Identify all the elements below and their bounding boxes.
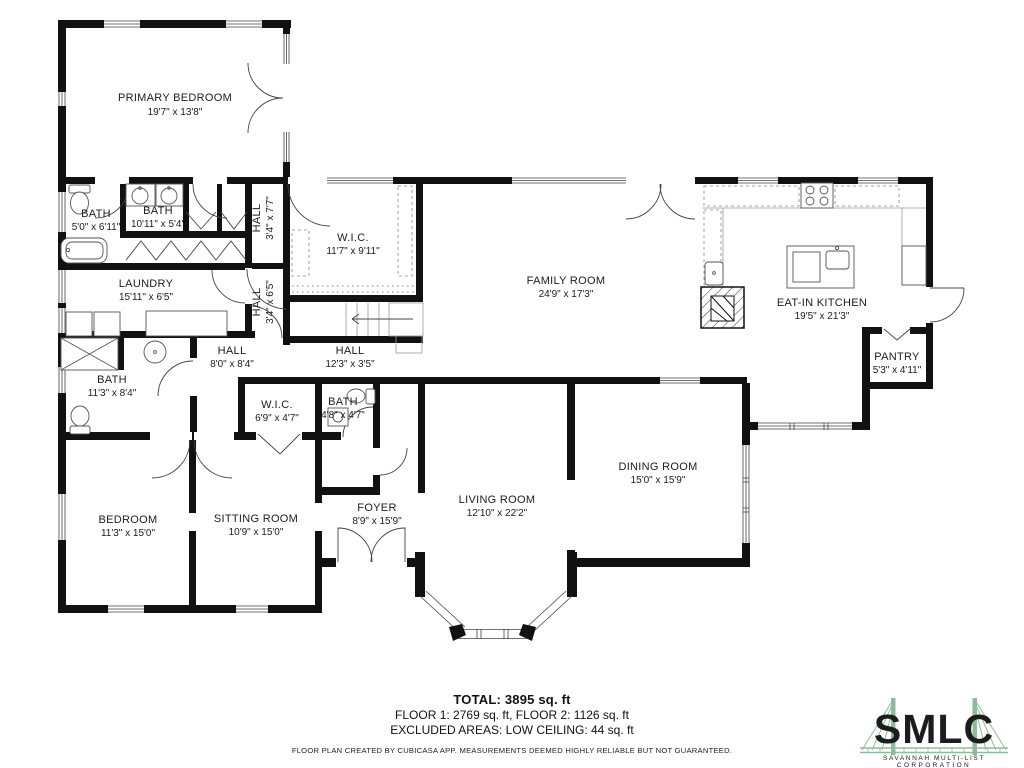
svg-text:15'11" x 6'5": 15'11" x 6'5" [119, 292, 174, 303]
room-label-bedroom: BEDROOM 11'3" x 15'0" [99, 514, 158, 539]
svg-text:11'7" x 9'11": 11'7" x 9'11" [326, 246, 380, 257]
svg-text:BATH: BATH [97, 374, 127, 386]
bathtub [61, 238, 107, 263]
svg-text:FOYER: FOYER [357, 502, 396, 514]
total-area: TOTAL: 3895 sq. ft [0, 692, 1024, 707]
svg-text:6'9" x 4'7": 6'9" x 4'7" [255, 413, 299, 424]
logo-subtext-1: SAVANNAH MULTI-LIST [883, 755, 985, 762]
room-label-pantry: PANTRY 5'3" x 4'11" [873, 351, 922, 376]
svg-text:11'3" x 15'0": 11'3" x 15'0" [101, 528, 156, 539]
kitchen-island [787, 246, 854, 288]
svg-text:W.I.C.: W.I.C. [261, 399, 293, 411]
logo-subtext-2: CORPORATION [897, 762, 971, 768]
svg-text:8'9" x 15'9": 8'9" x 15'9" [352, 516, 402, 527]
floor-areas: FLOOR 1: 2769 sq. ft, FLOOR 2: 1126 sq. … [0, 708, 1024, 722]
svg-text:12'3" x 3'5": 12'3" x 3'5" [325, 359, 375, 370]
svg-text:3'4" x 7'7": 3'4" x 7'7" [265, 196, 276, 240]
closet-rails [292, 186, 412, 276]
room-label-dining-room: DINING ROOM 15'0" x 15'9" [618, 461, 697, 486]
double-sink-vanity [126, 184, 183, 206]
room-label-wic-large: W.I.C. 11'7" x 9'11" [326, 232, 380, 257]
svg-text:BATH: BATH [328, 396, 358, 408]
svg-text:5'0" x 6'11": 5'0" x 6'11" [72, 222, 121, 233]
stove [801, 183, 833, 208]
room-label-bath-3: BATH 11'3" x 8'4" [88, 374, 137, 399]
svg-text:BEDROOM: BEDROOM [99, 514, 158, 526]
svg-text:FAMILY ROOM: FAMILY ROOM [527, 275, 606, 287]
svg-text:HALL: HALL [336, 345, 365, 357]
svg-text:BATH: BATH [143, 205, 173, 217]
washer-dryer [66, 311, 227, 336]
svg-text:8'0" x 8'4": 8'0" x 8'4" [210, 359, 254, 370]
svg-text:HALL: HALL [218, 345, 247, 357]
svg-text:LIVING ROOM: LIVING ROOM [459, 494, 536, 506]
room-label-hall-center: HALL 8'0" x 8'4" [210, 345, 254, 370]
disclaimer: FLOOR PLAN CREATED BY CUBICASA APP. MEAS… [0, 746, 1024, 755]
svg-text:4'8" x 4'7": 4'8" x 4'7" [321, 410, 365, 421]
svg-text:19'5" x 21'3": 19'5" x 21'3" [795, 311, 850, 322]
excluded-areas: EXCLUDED AREAS: LOW CEILING: 44 sq. ft [0, 723, 1024, 737]
room-label-foyer: FOYER 8'9" x 15'9" [352, 502, 402, 527]
room-label-bath-2: BATH 10'11" x 5'4" [131, 205, 186, 230]
room-label-living-room: LIVING ROOM 12'10" x 22'2" [459, 494, 536, 519]
svg-text:HALL: HALL [251, 288, 263, 317]
shower [61, 338, 118, 370]
svg-text:11'3" x 8'4": 11'3" x 8'4" [88, 388, 137, 399]
floor-plan-page: PRIMARY BEDROOM 19'7" x 13'8" BATH 5'0" … [0, 0, 1024, 768]
svg-text:15'0" x 15'9": 15'0" x 15'9" [631, 475, 686, 486]
room-label-eat-in-kitchen: EAT-IN KITCHEN 19'5" x 21'3" [777, 297, 867, 322]
svg-text:HALL: HALL [251, 204, 263, 233]
toilet [70, 406, 90, 434]
svg-text:12'10" x 22'2": 12'10" x 22'2" [467, 508, 528, 519]
room-label-hall-stairs: HALL 12'3" x 3'5" [325, 345, 375, 370]
room-label-hall-upper: HALL 3'4" x 7'7" [251, 196, 276, 240]
svg-text:10'11" x 5'4": 10'11" x 5'4" [131, 219, 186, 230]
svg-text:PRIMARY BEDROOM: PRIMARY BEDROOM [118, 92, 232, 104]
room-label-family-room: FAMILY ROOM 24'9" x 17'3" [527, 275, 606, 300]
svg-text:24'9" x 17'3": 24'9" x 17'3" [539, 289, 594, 300]
svg-text:W.I.C.: W.I.C. [337, 232, 369, 244]
svg-text:PANTRY: PANTRY [874, 351, 920, 363]
svg-text:10'9" x 15'0": 10'9" x 15'0" [229, 527, 284, 538]
floor-plan-drawing: PRIMARY BEDROOM 19'7" x 13'8" BATH 5'0" … [0, 0, 1024, 768]
svg-text:19'7" x 13'8": 19'7" x 13'8" [148, 107, 203, 118]
svg-text:3'4" x 6'5": 3'4" x 6'5" [265, 280, 276, 324]
svg-text:EAT-IN KITCHEN: EAT-IN KITCHEN [777, 297, 867, 309]
svg-text:BATH: BATH [81, 208, 111, 220]
area-summary: TOTAL: 3895 sq. ft FLOOR 1: 2769 sq. ft,… [0, 692, 1024, 755]
fireplace [701, 287, 744, 328]
svg-text:DINING ROOM: DINING ROOM [618, 461, 697, 473]
room-label-primary-bedroom: PRIMARY BEDROOM 19'7" x 13'8" [118, 92, 232, 118]
room-label-wic-small: W.I.C. 6'9" x 4'7" [255, 399, 299, 424]
svg-text:5'3" x 4'11": 5'3" x 4'11" [873, 365, 922, 376]
svg-text:LAUNDRY: LAUNDRY [119, 278, 174, 290]
sink [144, 341, 166, 363]
room-label-laundry: LAUNDRY 15'11" x 6'5" [119, 278, 174, 303]
svg-text:SITTING ROOM: SITTING ROOM [214, 513, 298, 525]
room-label-sitting-room: SITTING ROOM 10'9" x 15'0" [214, 513, 298, 538]
bay-window [420, 591, 572, 641]
